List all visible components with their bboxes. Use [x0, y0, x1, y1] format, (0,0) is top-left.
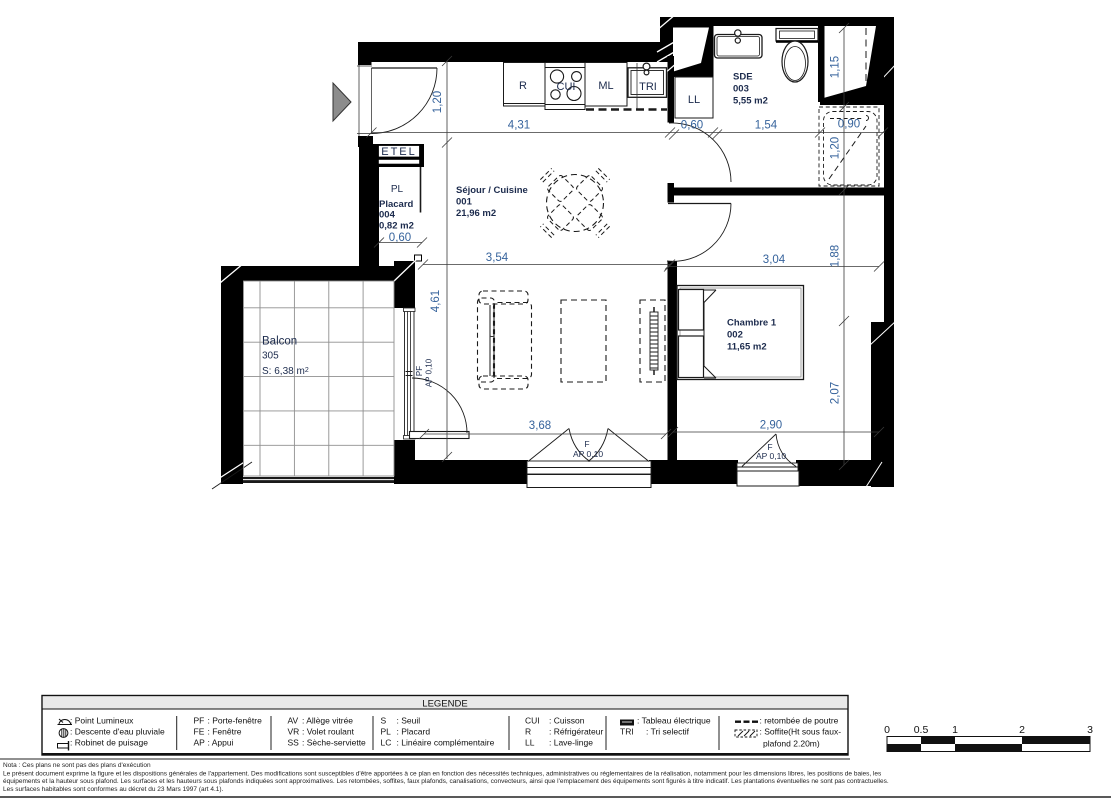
- svg-text:3: 3: [1087, 724, 1093, 736]
- svg-text:AP 0,10: AP 0,10: [573, 449, 603, 459]
- svg-text:3,54: 3,54: [486, 252, 509, 264]
- svg-text:305: 305: [262, 351, 279, 362]
- svg-text:003: 003: [733, 84, 749, 95]
- svg-text:: Cuisson: : Cuisson: [549, 716, 585, 726]
- svg-text:PL: PL: [381, 727, 392, 737]
- svg-text:: Soffite(Ht sous faux-: : Soffite(Ht sous faux-: [760, 727, 842, 737]
- svg-text:Nota : Ces plans ne sont pas d: Nota : Ces plans ne sont pas des plans d…: [3, 762, 151, 769]
- svg-text:PL: PL: [391, 184, 404, 195]
- svg-text:: Descente d'eau pluviale: : Descente d'eau pluviale: [70, 727, 165, 737]
- svg-text:1,20: 1,20: [432, 91, 444, 113]
- svg-text:001: 001: [456, 197, 473, 208]
- svg-text:équipements et la hauteur sous: équipements et la hauteur sous plafond. …: [3, 778, 889, 785]
- svg-text:Placard: Placard: [379, 199, 414, 210]
- svg-text:21,96 m2: 21,96 m2: [456, 208, 496, 219]
- svg-text:: Seuil: : Seuil: [397, 716, 421, 726]
- svg-text:AP 0,10: AP 0,10: [756, 451, 786, 461]
- svg-text:: Porte-fenêtre: : Porte-fenêtre: [208, 716, 263, 726]
- svg-text:plafond 2.20m): plafond 2.20m): [763, 739, 820, 749]
- svg-text:: Volet roulant: : Volet roulant: [302, 727, 355, 737]
- svg-text:Le présent document exprime la: Le présent document exprime la figure et…: [3, 770, 882, 777]
- svg-text:Balcon: Balcon: [262, 336, 297, 348]
- svg-text:SS: SS: [288, 737, 300, 747]
- svg-text:Chambre 1: Chambre 1: [727, 318, 777, 329]
- svg-text:LEGENDE: LEGENDE: [422, 699, 467, 710]
- svg-text:1: 1: [952, 724, 958, 736]
- svg-text:S: S: [381, 716, 387, 726]
- svg-text:3,04: 3,04: [763, 254, 786, 266]
- svg-text:R: R: [525, 727, 531, 737]
- svg-text:: Appui: : Appui: [208, 737, 234, 747]
- svg-text:4,61: 4,61: [430, 290, 442, 312]
- svg-text:R: R: [519, 80, 527, 92]
- svg-text:SDE: SDE: [733, 72, 753, 83]
- svg-text:0,90: 0,90: [838, 119, 860, 131]
- svg-text:0.5: 0.5: [914, 724, 929, 736]
- svg-text:Séjour / Cuisine: Séjour / Cuisine: [456, 185, 528, 196]
- svg-text:0,82 m2: 0,82 m2: [379, 221, 414, 232]
- svg-text:1,54: 1,54: [755, 120, 778, 132]
- svg-text:: Linéaire complémentaire: : Linéaire complémentaire: [397, 737, 495, 747]
- svg-text:1,15: 1,15: [830, 56, 842, 78]
- svg-text:: retombée de poutre: : retombée de poutre: [760, 716, 839, 726]
- svg-text:: Sèche-serviette: : Sèche-serviette: [302, 737, 366, 747]
- svg-text:0: 0: [884, 724, 890, 736]
- svg-text:: Allège vitrée: : Allège vitrée: [302, 716, 353, 726]
- svg-text:: Réfrigérateur: : Réfrigérateur: [549, 727, 603, 737]
- svg-text:AP 0,10: AP 0,10: [425, 358, 434, 387]
- svg-text:TRI: TRI: [639, 81, 657, 93]
- svg-text:CUI: CUI: [525, 716, 540, 726]
- svg-text:1,20: 1,20: [830, 137, 842, 159]
- svg-text:004: 004: [379, 210, 396, 221]
- svg-text:: Placard: : Placard: [397, 727, 431, 737]
- svg-text:: Tri selectif: : Tri selectif: [646, 727, 690, 737]
- svg-text:: Lave-linge: : Lave-linge: [549, 737, 593, 747]
- svg-text:2,07: 2,07: [830, 382, 842, 404]
- svg-text:VR: VR: [288, 727, 300, 737]
- svg-text:002: 002: [727, 330, 743, 341]
- svg-text:LC: LC: [381, 737, 392, 747]
- svg-text:1,88: 1,88: [830, 245, 842, 267]
- svg-text:ML: ML: [598, 80, 613, 92]
- svg-text:FE: FE: [194, 727, 205, 737]
- svg-text:PF: PF: [415, 366, 424, 376]
- svg-text:TRI: TRI: [620, 727, 634, 737]
- svg-text:: Robinet de puisage: : Robinet de puisage: [70, 737, 148, 747]
- svg-text:ETEL: ETEL: [381, 146, 417, 158]
- svg-text:2: 2: [1019, 724, 1025, 736]
- svg-text:5,55 m2: 5,55 m2: [733, 96, 768, 107]
- svg-text:F: F: [584, 439, 589, 449]
- svg-text:11,65 m2: 11,65 m2: [727, 342, 767, 353]
- svg-text:4,31: 4,31: [508, 120, 530, 132]
- svg-text:: Tableau électrique: : Tableau électrique: [637, 716, 711, 726]
- svg-text:CUI: CUI: [557, 81, 576, 93]
- svg-text:Les surfaces habitables sont c: Les surfaces habitables sont conformes a…: [3, 786, 224, 793]
- svg-text:: Fenêtre: : Fenêtre: [208, 727, 242, 737]
- svg-text:PF: PF: [194, 716, 205, 726]
- svg-text:: Point Lumineux: : Point Lumineux: [70, 716, 134, 726]
- svg-text:3,68: 3,68: [529, 420, 551, 432]
- svg-text:0,60: 0,60: [681, 120, 703, 132]
- svg-text:AV: AV: [288, 716, 299, 726]
- svg-text:LL: LL: [688, 94, 700, 106]
- svg-text:LL: LL: [525, 737, 535, 747]
- svg-text:2,90: 2,90: [760, 420, 782, 432]
- svg-text:AP: AP: [194, 737, 206, 747]
- svg-text:S: 6,38 m2: S: 6,38 m2: [262, 366, 309, 377]
